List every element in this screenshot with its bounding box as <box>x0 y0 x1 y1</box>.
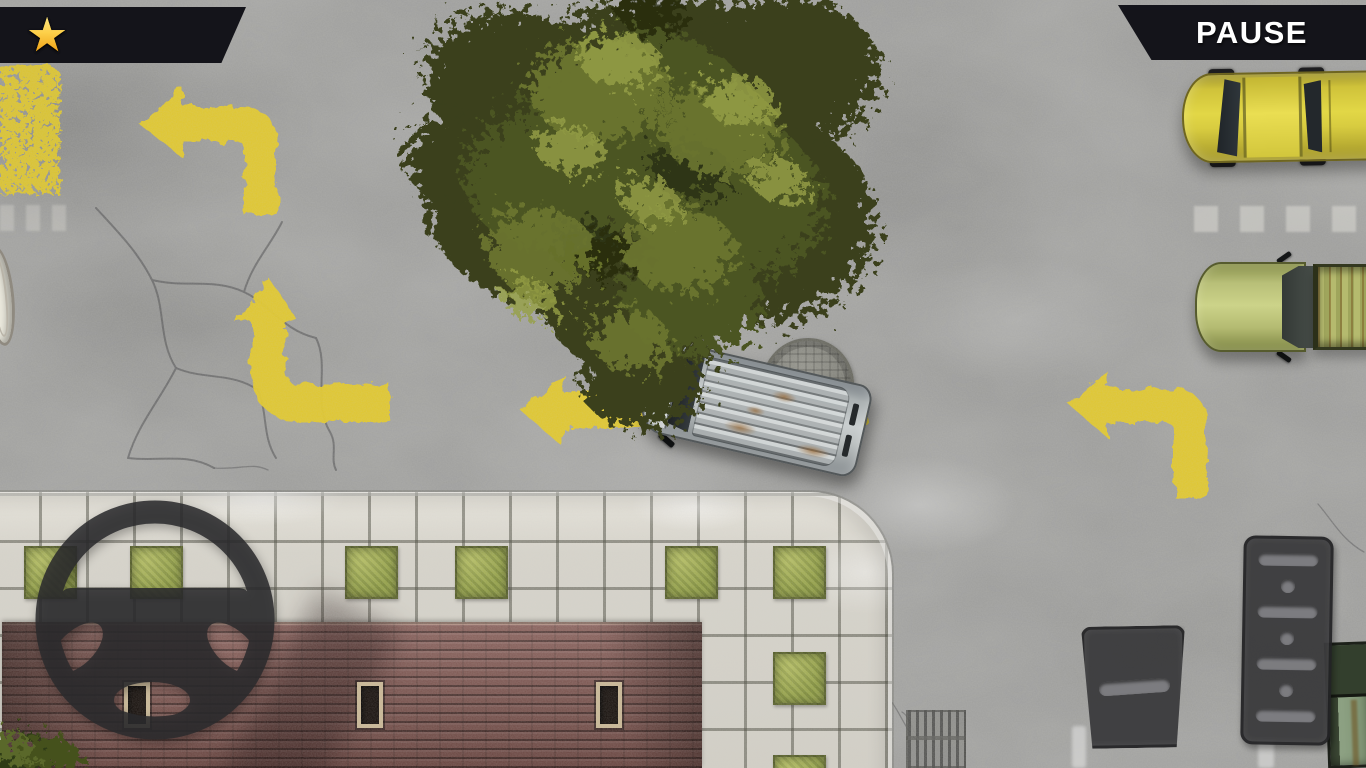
game-viewport: ★ ★ ★ PAUSE <box>0 0 1366 768</box>
windshield <box>1216 79 1242 157</box>
pause-button[interactable]: PAUSE <box>1118 5 1366 60</box>
windshield <box>1282 266 1313 349</box>
star-rating-banner: ★ ★ ★ <box>0 7 246 63</box>
star-icon: ★ <box>26 9 68 61</box>
dumpster-stain <box>1351 700 1359 766</box>
pickup-wooden-bed <box>1313 264 1366 350</box>
pedal-bar <box>1257 604 1318 618</box>
gas-pedal[interactable] <box>1240 535 1334 746</box>
pedal-bar <box>1258 552 1319 566</box>
dumpster-lid <box>1327 644 1366 697</box>
worn-paint-patch <box>0 66 60 194</box>
trunk-seam <box>1329 80 1332 152</box>
car-roof <box>1243 77 1304 157</box>
pedal-dots <box>1245 630 1329 645</box>
yellow-sedan-body <box>1181 70 1366 163</box>
pause-button-label: PAUSE <box>1196 15 1308 51</box>
brake-pedal[interactable] <box>1081 625 1187 749</box>
pedal-dots <box>1244 682 1328 697</box>
arrow-turn-left-top-left <box>139 88 277 215</box>
pedal-dots <box>1246 578 1330 593</box>
pedal-bar <box>1256 656 1317 670</box>
pedal-slot <box>1098 678 1169 697</box>
yellow-sedan <box>1181 70 1366 163</box>
arrow-turn-left-right <box>1068 371 1207 497</box>
wheel-hub[interactable] <box>128 601 176 649</box>
rear-door-slot <box>841 435 852 458</box>
green-pickup-truck <box>1195 262 1366 352</box>
pedal-bar <box>1255 708 1316 722</box>
rear-door-slot <box>848 403 859 426</box>
steering-wheel[interactable] <box>35 500 275 740</box>
rear-window <box>1304 80 1322 153</box>
sewer-grate <box>906 710 966 768</box>
arrow-turn-up-mid-left <box>236 277 390 420</box>
